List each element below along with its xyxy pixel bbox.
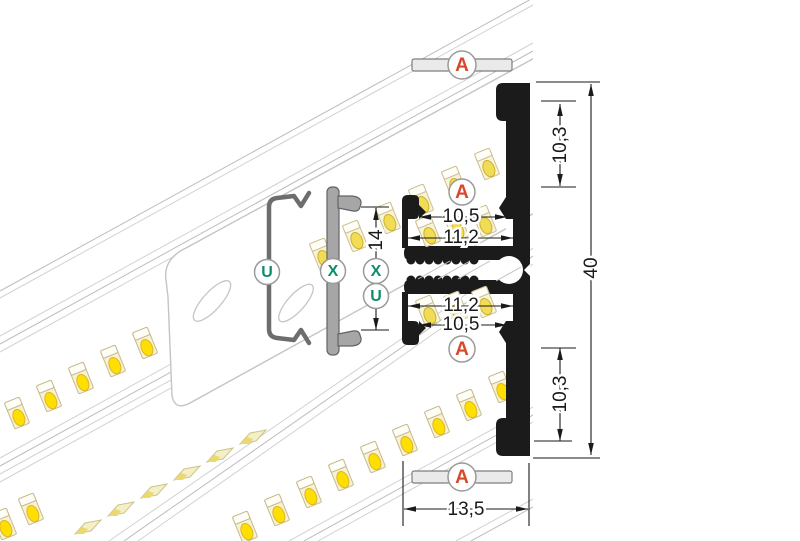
marker-u-dimension: U bbox=[364, 284, 389, 309]
marker-a-top-cover-letter: A bbox=[455, 55, 469, 76]
dim-bottom-pocket-depth: 10,3 bbox=[550, 376, 571, 413]
dim-total-width: 13,5 bbox=[448, 499, 485, 520]
dim-top-pocket-depth: 10,3 bbox=[550, 127, 571, 164]
marker-u-spring-clip: U bbox=[255, 260, 280, 285]
screw-port-hole bbox=[495, 256, 523, 284]
dim-total-height: 40 bbox=[581, 257, 602, 278]
dim-top-opening-width: 10,5 bbox=[443, 206, 480, 227]
marker-u-spring-clip-letter: U bbox=[261, 264, 273, 281]
technical-drawing-led-profile: 10,5 11,2 11,2 10,5 13,5 14 40 10,3 10,3… bbox=[0, 0, 800, 541]
marker-a-bottom-cover-letter: A bbox=[455, 467, 469, 488]
marker-u-dimension-letter: U bbox=[370, 288, 382, 305]
marker-a-bottom-cover: A bbox=[448, 463, 476, 491]
marker-a-upper-channel: A bbox=[449, 179, 475, 205]
dim-bottom-inner-width: 11,2 bbox=[443, 295, 479, 316]
led-strip-corner-row bbox=[0, 493, 44, 540]
drawing-canvas: 10,5 11,2 11,2 10,5 13,5 14 40 10,3 10,3… bbox=[0, 0, 800, 541]
marker-a-top-cover: A bbox=[448, 51, 476, 79]
dim-bottom-opening-width: 10,5 bbox=[443, 314, 480, 335]
marker-x-dimension: X bbox=[364, 259, 389, 284]
dim-top-inner-width: 11,2 bbox=[443, 227, 479, 248]
marker-a-lower-channel: A bbox=[449, 336, 475, 362]
marker-x-dimension-letter: X bbox=[371, 263, 382, 280]
marker-x-flat-clip-letter: X bbox=[328, 263, 339, 280]
marker-a-upper-channel-letter: A bbox=[455, 182, 469, 203]
marker-x-flat-clip: X bbox=[321, 259, 346, 284]
marker-a-lower-channel-letter: A bbox=[455, 339, 469, 360]
dim-clip-span: 14 bbox=[366, 229, 387, 251]
